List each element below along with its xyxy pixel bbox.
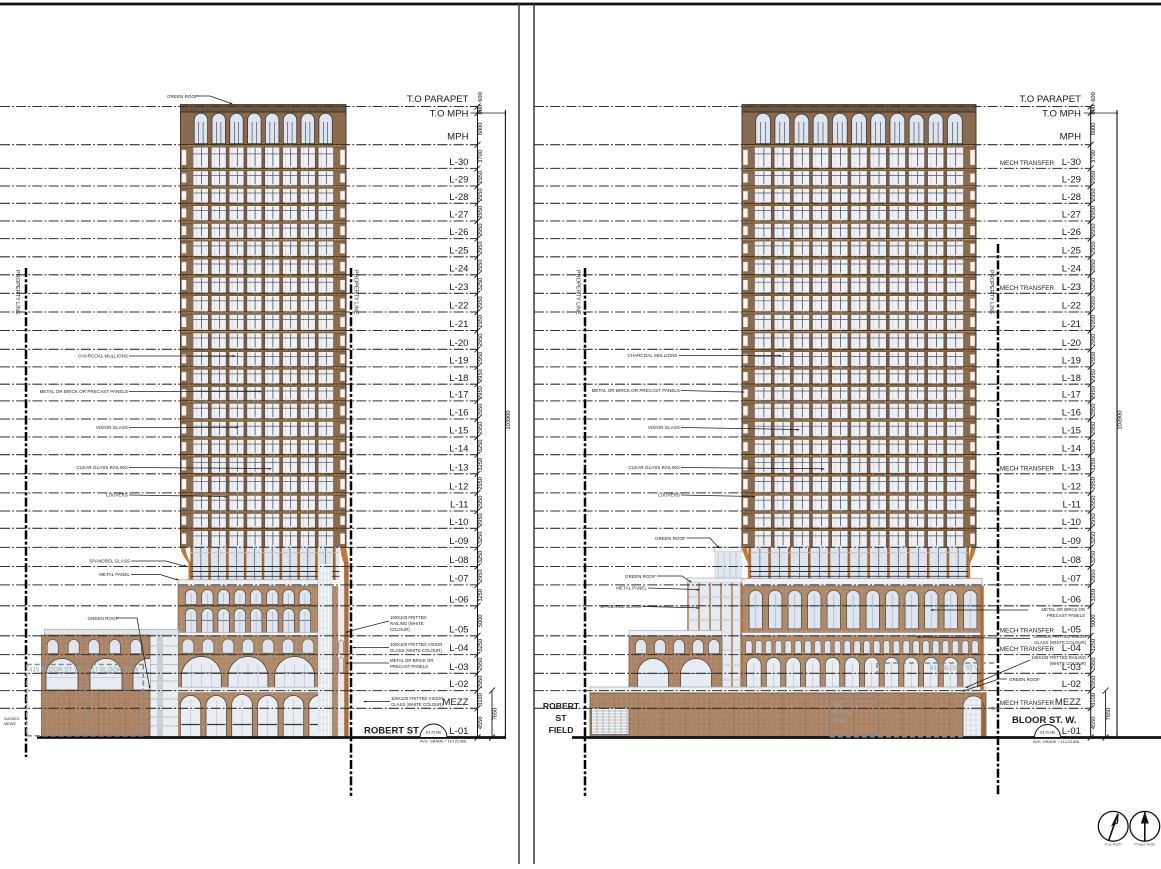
- svg-text:CLEAR GLASS RAILING: CLEAR GLASS RAILING: [76, 465, 128, 470]
- svg-text:2950: 2950: [478, 259, 484, 272]
- svg-text:FIELD: FIELD: [549, 725, 574, 735]
- svg-text:100X100 FRITTED VISION: 100X100 FRITTED VISION: [390, 642, 442, 647]
- svg-text:2950: 2950: [1091, 188, 1097, 201]
- svg-text:SUSSEX: SUSSEX: [4, 717, 20, 721]
- svg-text:2950: 2950: [478, 496, 484, 509]
- svg-text:True North: True North: [1104, 843, 1121, 847]
- svg-text:2950: 2950: [478, 369, 484, 382]
- svg-text:L-28: L-28: [449, 192, 468, 203]
- svg-text:MPH: MPH: [1060, 131, 1081, 142]
- svg-text:2950: 2950: [478, 386, 484, 399]
- svg-text:2950: 2950: [1091, 658, 1097, 671]
- svg-text:L-14: L-14: [1062, 443, 1082, 454]
- svg-text:L-05: L-05: [449, 624, 468, 635]
- svg-text:L-29: L-29: [1062, 175, 1081, 186]
- svg-text:7650: 7650: [1106, 708, 1112, 721]
- svg-text:L-03: L-03: [449, 662, 468, 673]
- svg-text:114.25 ABL: 114.25 ABL: [1039, 731, 1055, 735]
- svg-text:PRECAST PANELS: PRECAST PANELS: [390, 664, 428, 669]
- svg-text:L-12: L-12: [1062, 482, 1081, 493]
- svg-text:VISION GLASS: VISION GLASS: [96, 425, 128, 430]
- svg-text:L-09: L-09: [1062, 536, 1081, 547]
- svg-text:2950: 2950: [1091, 241, 1097, 254]
- svg-text:5000: 5000: [478, 614, 484, 627]
- svg-text:2950: 2950: [1091, 315, 1097, 328]
- svg-text:2950: 2950: [1091, 334, 1097, 347]
- svg-text:2950: 2950: [1091, 352, 1097, 365]
- svg-text:L-26: L-26: [1062, 227, 1081, 238]
- svg-text:2950: 2950: [478, 477, 484, 490]
- svg-text:METAL PANEL: METAL PANEL: [616, 586, 647, 591]
- svg-text:L-16: L-16: [1062, 408, 1081, 419]
- svg-text:2950: 2950: [478, 569, 484, 582]
- svg-text:L-21: L-21: [1062, 319, 1081, 330]
- svg-text:3250: 3250: [1091, 551, 1097, 564]
- svg-text:2950: 2950: [478, 404, 484, 417]
- svg-text:5000: 5000: [1091, 614, 1097, 627]
- svg-text:3100: 3100: [1091, 693, 1097, 706]
- svg-text:L-30: L-30: [449, 157, 468, 168]
- svg-text:2950: 2950: [1091, 569, 1097, 582]
- svg-text:3250: 3250: [1091, 278, 1097, 291]
- svg-text:MECH TRANSFER: MECH TRANSFER: [1000, 285, 1055, 292]
- svg-text:3250: 3250: [478, 589, 484, 602]
- svg-text:2950: 2950: [1091, 206, 1097, 219]
- svg-text:L-13: L-13: [1062, 462, 1081, 473]
- svg-text:L-18: L-18: [1062, 373, 1081, 384]
- svg-text:GLASS (WHITE COLOUR): GLASS (WHITE COLOUR): [391, 702, 443, 707]
- svg-text:2950: 2950: [478, 658, 484, 671]
- svg-text:GREEN ROOF: GREEN ROOF: [655, 536, 686, 541]
- svg-text:ROBERT: ROBERT: [543, 701, 580, 711]
- svg-text:2950: 2950: [1091, 404, 1097, 417]
- svg-text:2950: 2950: [478, 223, 484, 236]
- svg-text:3250: 3250: [1091, 589, 1097, 602]
- svg-text:100X100 FRITTED RAILING: 100X100 FRITTED RAILING: [1031, 655, 1087, 660]
- svg-text:AVG. GRADE = 114.23 ABL: AVG. GRADE = 114.23 ABL: [420, 740, 467, 744]
- svg-text:2950: 2950: [478, 352, 484, 365]
- svg-text:6000: 6000: [478, 123, 484, 136]
- svg-text:2950: 2950: [1091, 422, 1097, 435]
- svg-text:6000: 6000: [1091, 123, 1097, 136]
- svg-text:GREEN ROOF: GREEN ROOF: [167, 94, 198, 99]
- svg-text:103900: 103900: [506, 411, 512, 430]
- svg-text:MEWS: MEWS: [4, 722, 16, 726]
- svg-text:L-22: L-22: [449, 301, 468, 312]
- svg-text:L-20: L-20: [1062, 338, 1081, 349]
- svg-text:415 BLOOR ST W: 415 BLOOR ST W: [930, 665, 981, 672]
- svg-text:L-02: L-02: [1062, 679, 1081, 690]
- svg-text:GLASS (WHITE COLOUR): GLASS (WHITE COLOUR): [390, 648, 442, 653]
- svg-text:L-15: L-15: [449, 426, 468, 437]
- svg-text:MECH TRANSFER: MECH TRANSFER: [1000, 160, 1055, 167]
- svg-text:L-19: L-19: [449, 356, 468, 367]
- svg-text:GREEN ROOF: GREEN ROOF: [1009, 677, 1040, 682]
- svg-text:MEZZ: MEZZ: [442, 697, 468, 708]
- svg-text:2950: 2950: [478, 676, 484, 689]
- svg-text:METAL PANEL: METAL PANEL: [99, 572, 130, 577]
- svg-text:L-26: L-26: [449, 227, 468, 238]
- svg-text:L-07: L-07: [1062, 574, 1081, 585]
- svg-text:MPH: MPH: [447, 131, 468, 142]
- svg-text:L-06: L-06: [1062, 594, 1081, 605]
- svg-text:BLOOR ST. W.: BLOOR ST. W.: [1012, 715, 1076, 726]
- svg-text:100X100 FRITTED: 100X100 FRITTED: [390, 615, 427, 620]
- svg-text:L-23: L-23: [449, 282, 468, 293]
- svg-text:L-23: L-23: [1062, 282, 1081, 293]
- svg-text:417 BLOOR ST W: 417 BLOOR ST W: [88, 667, 139, 674]
- svg-text:CHARCOAL MULLIONS: CHARCOAL MULLIONS: [627, 353, 677, 358]
- svg-text:SPANDREL GLASS: SPANDREL GLASS: [600, 604, 641, 609]
- svg-text:LOUVERS: LOUVERS: [658, 493, 680, 498]
- svg-text:2950: 2950: [1091, 296, 1097, 309]
- svg-text:3700: 3700: [1091, 150, 1097, 163]
- svg-text:L-04: L-04: [449, 643, 469, 654]
- svg-text:GREEN ROOF: GREEN ROOF: [88, 616, 119, 621]
- svg-text:T.O PARAPET: T.O PARAPET: [407, 94, 469, 105]
- svg-text:SPANDREL GLASS: SPANDREL GLASS: [89, 559, 130, 564]
- svg-text:2950: 2950: [478, 315, 484, 328]
- svg-text:3250: 3250: [478, 278, 484, 291]
- svg-text:PROPERTY LINE: PROPERTY LINE: [353, 270, 359, 315]
- svg-text:MECH TRANSFER: MECH TRANSFER: [1000, 646, 1055, 653]
- svg-text:PROPERTY LINE: PROPERTY LINE: [988, 270, 994, 315]
- svg-text:2950: 2950: [478, 296, 484, 309]
- svg-text:2950: 2950: [478, 188, 484, 201]
- svg-text:L-15: L-15: [1062, 426, 1081, 437]
- svg-text:3250: 3250: [1091, 639, 1097, 652]
- svg-text:2950: 2950: [1091, 223, 1097, 236]
- svg-text:METAL OR BRICK OR PRECAST PANE: METAL OR BRICK OR PRECAST PANELS: [592, 388, 680, 393]
- svg-text:3250: 3250: [1091, 440, 1097, 453]
- svg-text:2950: 2950: [478, 422, 484, 435]
- svg-text:GLASS (WHITE COLOUR): GLASS (WHITE COLOUR): [1034, 640, 1086, 645]
- svg-text:2950: 2950: [1091, 171, 1097, 184]
- svg-text:L-11: L-11: [1063, 500, 1082, 511]
- svg-text:L-20: L-20: [449, 338, 468, 349]
- svg-text:L-25: L-25: [449, 245, 468, 256]
- svg-text:VISION GLASS: VISION GLASS: [648, 425, 680, 430]
- svg-text:2950: 2950: [1091, 386, 1097, 399]
- svg-text:2950: 2950: [1091, 369, 1097, 382]
- svg-text:447: 447: [833, 702, 842, 708]
- svg-text:3250: 3250: [478, 458, 484, 471]
- svg-text:L-06: L-06: [449, 594, 468, 605]
- svg-text:CHARCOAL MULLIONS: CHARCOAL MULLIONS: [78, 354, 128, 359]
- svg-text:4550: 4550: [478, 717, 484, 730]
- svg-text:3250: 3250: [1091, 458, 1097, 471]
- svg-text:L-27: L-27: [1062, 210, 1081, 221]
- svg-text:L-10: L-10: [1062, 517, 1081, 528]
- svg-text:3250: 3250: [478, 532, 484, 545]
- svg-text:103900: 103900: [1118, 411, 1124, 430]
- svg-text:3100: 3100: [478, 693, 484, 706]
- svg-text:METAL OR BRICK OR PRECAST PANE: METAL OR BRICK OR PRECAST PANELS: [40, 389, 128, 394]
- svg-text:L-01: L-01: [1062, 726, 1081, 737]
- svg-text:L-07: L-07: [449, 574, 468, 585]
- svg-text:L-24: L-24: [1062, 263, 1082, 274]
- svg-text:METAL OR BRICK OR: METAL OR BRICK OR: [390, 658, 433, 663]
- svg-text:ST: ST: [556, 713, 568, 723]
- svg-text:CLEAR GLASS RAILING: CLEAR GLASS RAILING: [628, 465, 680, 470]
- svg-text:L-02: L-02: [449, 679, 468, 690]
- svg-text:2950: 2950: [478, 513, 484, 526]
- svg-text:600: 600: [1091, 92, 1097, 102]
- svg-text:T.O PARAPET: T.O PARAPET: [1019, 94, 1081, 105]
- svg-text:3250: 3250: [478, 639, 484, 652]
- svg-text:L-25: L-25: [1062, 245, 1081, 256]
- svg-text:L-29: L-29: [449, 175, 468, 186]
- svg-text:L-21: L-21: [449, 319, 468, 330]
- svg-text:LOUVERS: LOUVERS: [106, 493, 128, 498]
- svg-text:METAL OR BRICK OR: METAL OR BRICK OR: [1042, 607, 1085, 612]
- svg-text:L-09: L-09: [449, 536, 468, 547]
- svg-text:MECH TRANSFER: MECH TRANSFER: [1000, 465, 1055, 472]
- svg-text:BLOOR: BLOOR: [833, 710, 851, 716]
- svg-text:L-17: L-17: [1062, 390, 1081, 401]
- svg-text:L-28: L-28: [1062, 192, 1081, 203]
- svg-text:PROPERTY LINE: PROPERTY LINE: [575, 270, 581, 315]
- svg-text:L-19: L-19: [1062, 356, 1081, 367]
- svg-text:PROPERTY LINE: PROPERTY LINE: [14, 270, 20, 315]
- svg-text:MEZZ: MEZZ: [1055, 697, 1081, 708]
- svg-text:L-22: L-22: [1062, 301, 1081, 312]
- svg-text:2950: 2950: [1091, 676, 1097, 689]
- svg-text:3700: 3700: [478, 150, 484, 163]
- svg-text:2950: 2950: [1091, 513, 1097, 526]
- svg-text:3250: 3250: [478, 551, 484, 564]
- svg-text:L-08: L-08: [449, 555, 468, 566]
- svg-text:L-30: L-30: [1062, 157, 1081, 168]
- svg-text:L-16: L-16: [449, 408, 468, 419]
- svg-text:2950: 2950: [478, 334, 484, 347]
- svg-text:600: 600: [478, 92, 484, 102]
- svg-text:L-08: L-08: [1062, 555, 1081, 566]
- svg-text:4550: 4550: [1091, 717, 1097, 730]
- svg-text:AVG. GRADE = 114.23 ABL: AVG. GRADE = 114.23 ABL: [1033, 740, 1080, 744]
- svg-text:3250: 3250: [1091, 532, 1097, 545]
- svg-text:L-14: L-14: [449, 443, 469, 454]
- svg-text:L-27: L-27: [449, 210, 468, 221]
- svg-text:MECH TRANSFER: MECH TRANSFER: [1000, 700, 1055, 707]
- svg-text:3250: 3250: [478, 440, 484, 453]
- svg-text:COLOUR): COLOUR): [390, 627, 410, 632]
- svg-text:PRECAST PANELS: PRECAST PANELS: [1047, 613, 1085, 618]
- svg-text:L-12: L-12: [449, 482, 468, 493]
- svg-text:L-17: L-17: [449, 390, 468, 401]
- svg-text:2950: 2950: [1091, 477, 1097, 490]
- svg-text:T.O MPH: T.O MPH: [430, 109, 469, 120]
- svg-text:RAILING (WHITE: RAILING (WHITE: [390, 621, 424, 626]
- svg-text:7650: 7650: [493, 708, 499, 721]
- svg-text:2950: 2950: [478, 206, 484, 219]
- svg-text:GREEN ROOF: GREEN ROOF: [625, 574, 656, 579]
- svg-text:L-24: L-24: [449, 263, 469, 274]
- svg-text:L-18: L-18: [449, 373, 468, 384]
- svg-text:Project North: Project North: [1134, 843, 1155, 847]
- svg-text:114.25 ABL: 114.25 ABL: [425, 731, 441, 735]
- svg-text:2950: 2950: [1091, 496, 1097, 509]
- svg-text:2950: 2950: [478, 171, 484, 184]
- svg-text:L-13: L-13: [449, 462, 468, 473]
- svg-text:100X100 FRITTED VISION: 100X100 FRITTED VISION: [391, 696, 443, 701]
- svg-text:(WHITE COLOUR): (WHITE COLOUR): [1050, 661, 1087, 666]
- svg-text:T.O MPH: T.O MPH: [1042, 109, 1081, 120]
- svg-text:100X100 FRITTED VISION: 100X100 FRITTED VISION: [1034, 634, 1086, 639]
- svg-text:L-01: L-01: [449, 726, 468, 737]
- svg-text:415 BLOOR ST W: 415 BLOOR ST W: [29, 667, 80, 674]
- svg-text:ST W: ST W: [833, 718, 846, 724]
- svg-text:L-11: L-11: [450, 500, 469, 511]
- svg-text:L-10: L-10: [449, 517, 468, 528]
- svg-text:2950: 2950: [1091, 259, 1097, 272]
- svg-text:ROBERT ST: ROBERT ST: [364, 726, 419, 737]
- svg-text:2950: 2950: [478, 241, 484, 254]
